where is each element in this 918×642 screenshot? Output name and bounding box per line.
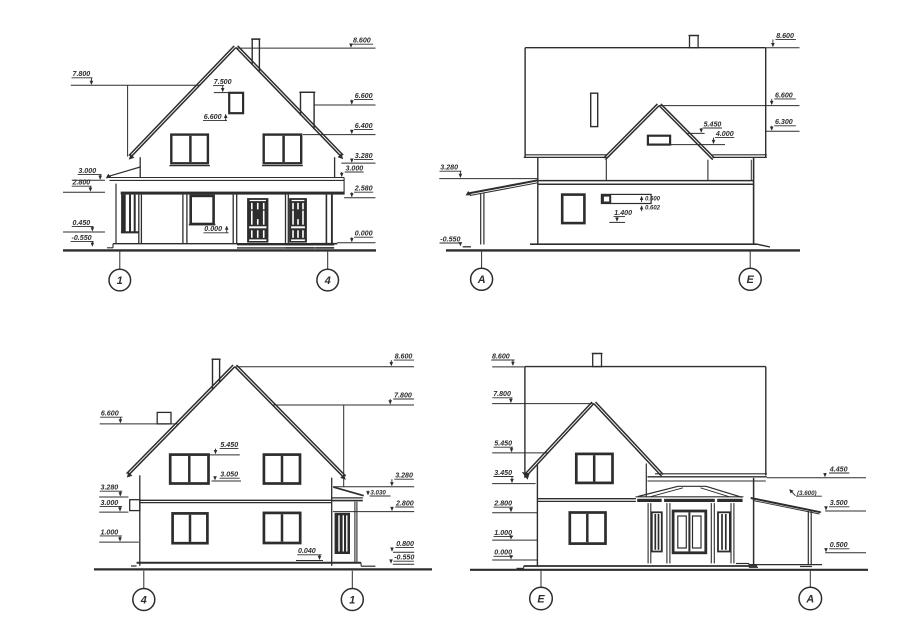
svg-text:7.500: 7.500 xyxy=(214,78,232,86)
svg-text:0.500: 0.500 xyxy=(830,541,848,549)
svg-text:-0.550: -0.550 xyxy=(72,234,92,242)
svg-text:3.050: 3.050 xyxy=(220,471,238,479)
svg-text:6.400: 6.400 xyxy=(355,122,373,130)
svg-text:0.800: 0.800 xyxy=(396,540,414,548)
svg-text:8.600: 8.600 xyxy=(492,352,510,360)
svg-text:-0.550: -0.550 xyxy=(394,554,414,562)
svg-text:2.800: 2.800 xyxy=(493,500,512,508)
svg-text:4: 4 xyxy=(140,594,147,606)
svg-text:0.450: 0.450 xyxy=(73,219,91,227)
svg-text:6.600: 6.600 xyxy=(204,113,222,121)
svg-text:4: 4 xyxy=(324,275,331,287)
svg-text:8.600: 8.600 xyxy=(353,37,371,45)
svg-text:3.000: 3.000 xyxy=(101,499,119,507)
svg-text:1.400: 1.400 xyxy=(614,209,632,217)
svg-text:А: А xyxy=(477,274,486,286)
svg-text:6.600: 6.600 xyxy=(101,410,119,418)
svg-text:2.580: 2.580 xyxy=(354,185,373,193)
svg-text:8.600: 8.600 xyxy=(395,353,413,361)
svg-text:3.450: 3.450 xyxy=(494,469,512,477)
svg-text:5.450: 5.450 xyxy=(494,440,512,448)
svg-text:3.500: 3.500 xyxy=(830,499,848,507)
svg-text:7.800: 7.800 xyxy=(493,390,511,398)
svg-text:4.000: 4.000 xyxy=(715,130,734,138)
svg-text:7.800: 7.800 xyxy=(73,70,91,78)
svg-text:2.800: 2.800 xyxy=(395,499,414,507)
svg-text:3.280: 3.280 xyxy=(101,484,119,492)
svg-text:7.800: 7.800 xyxy=(394,391,412,399)
svg-text:6.600: 6.600 xyxy=(775,91,793,99)
svg-text:0.602: 0.602 xyxy=(645,206,661,212)
svg-text:3.000: 3.000 xyxy=(78,167,96,175)
svg-text:1.000: 1.000 xyxy=(101,528,119,536)
svg-text:-0.550: -0.550 xyxy=(440,235,460,243)
svg-text:5.450: 5.450 xyxy=(220,441,238,449)
svg-text:5.450: 5.450 xyxy=(704,120,722,128)
svg-text:3.280: 3.280 xyxy=(440,164,458,172)
svg-text:3.280: 3.280 xyxy=(355,152,373,160)
svg-text:0.600: 0.600 xyxy=(645,196,661,202)
svg-text:4.450: 4.450 xyxy=(829,465,848,473)
svg-text:Е: Е xyxy=(537,593,545,605)
svg-text:Е: Е xyxy=(747,274,755,286)
svg-text:1: 1 xyxy=(117,275,123,287)
svg-text:0.040: 0.040 xyxy=(298,547,316,555)
svg-text:3.000: 3.000 xyxy=(346,164,364,172)
svg-text:8.600: 8.600 xyxy=(776,32,794,40)
svg-text:3.280: 3.280 xyxy=(395,472,413,480)
svg-text:0.000: 0.000 xyxy=(355,230,373,238)
svg-text:0.000: 0.000 xyxy=(204,225,222,233)
svg-text:6.600: 6.600 xyxy=(355,92,373,100)
svg-text:А: А xyxy=(805,593,814,605)
svg-text:6.300: 6.300 xyxy=(775,118,793,126)
svg-text:1: 1 xyxy=(349,594,355,606)
svg-text:2.800: 2.800 xyxy=(72,179,91,187)
